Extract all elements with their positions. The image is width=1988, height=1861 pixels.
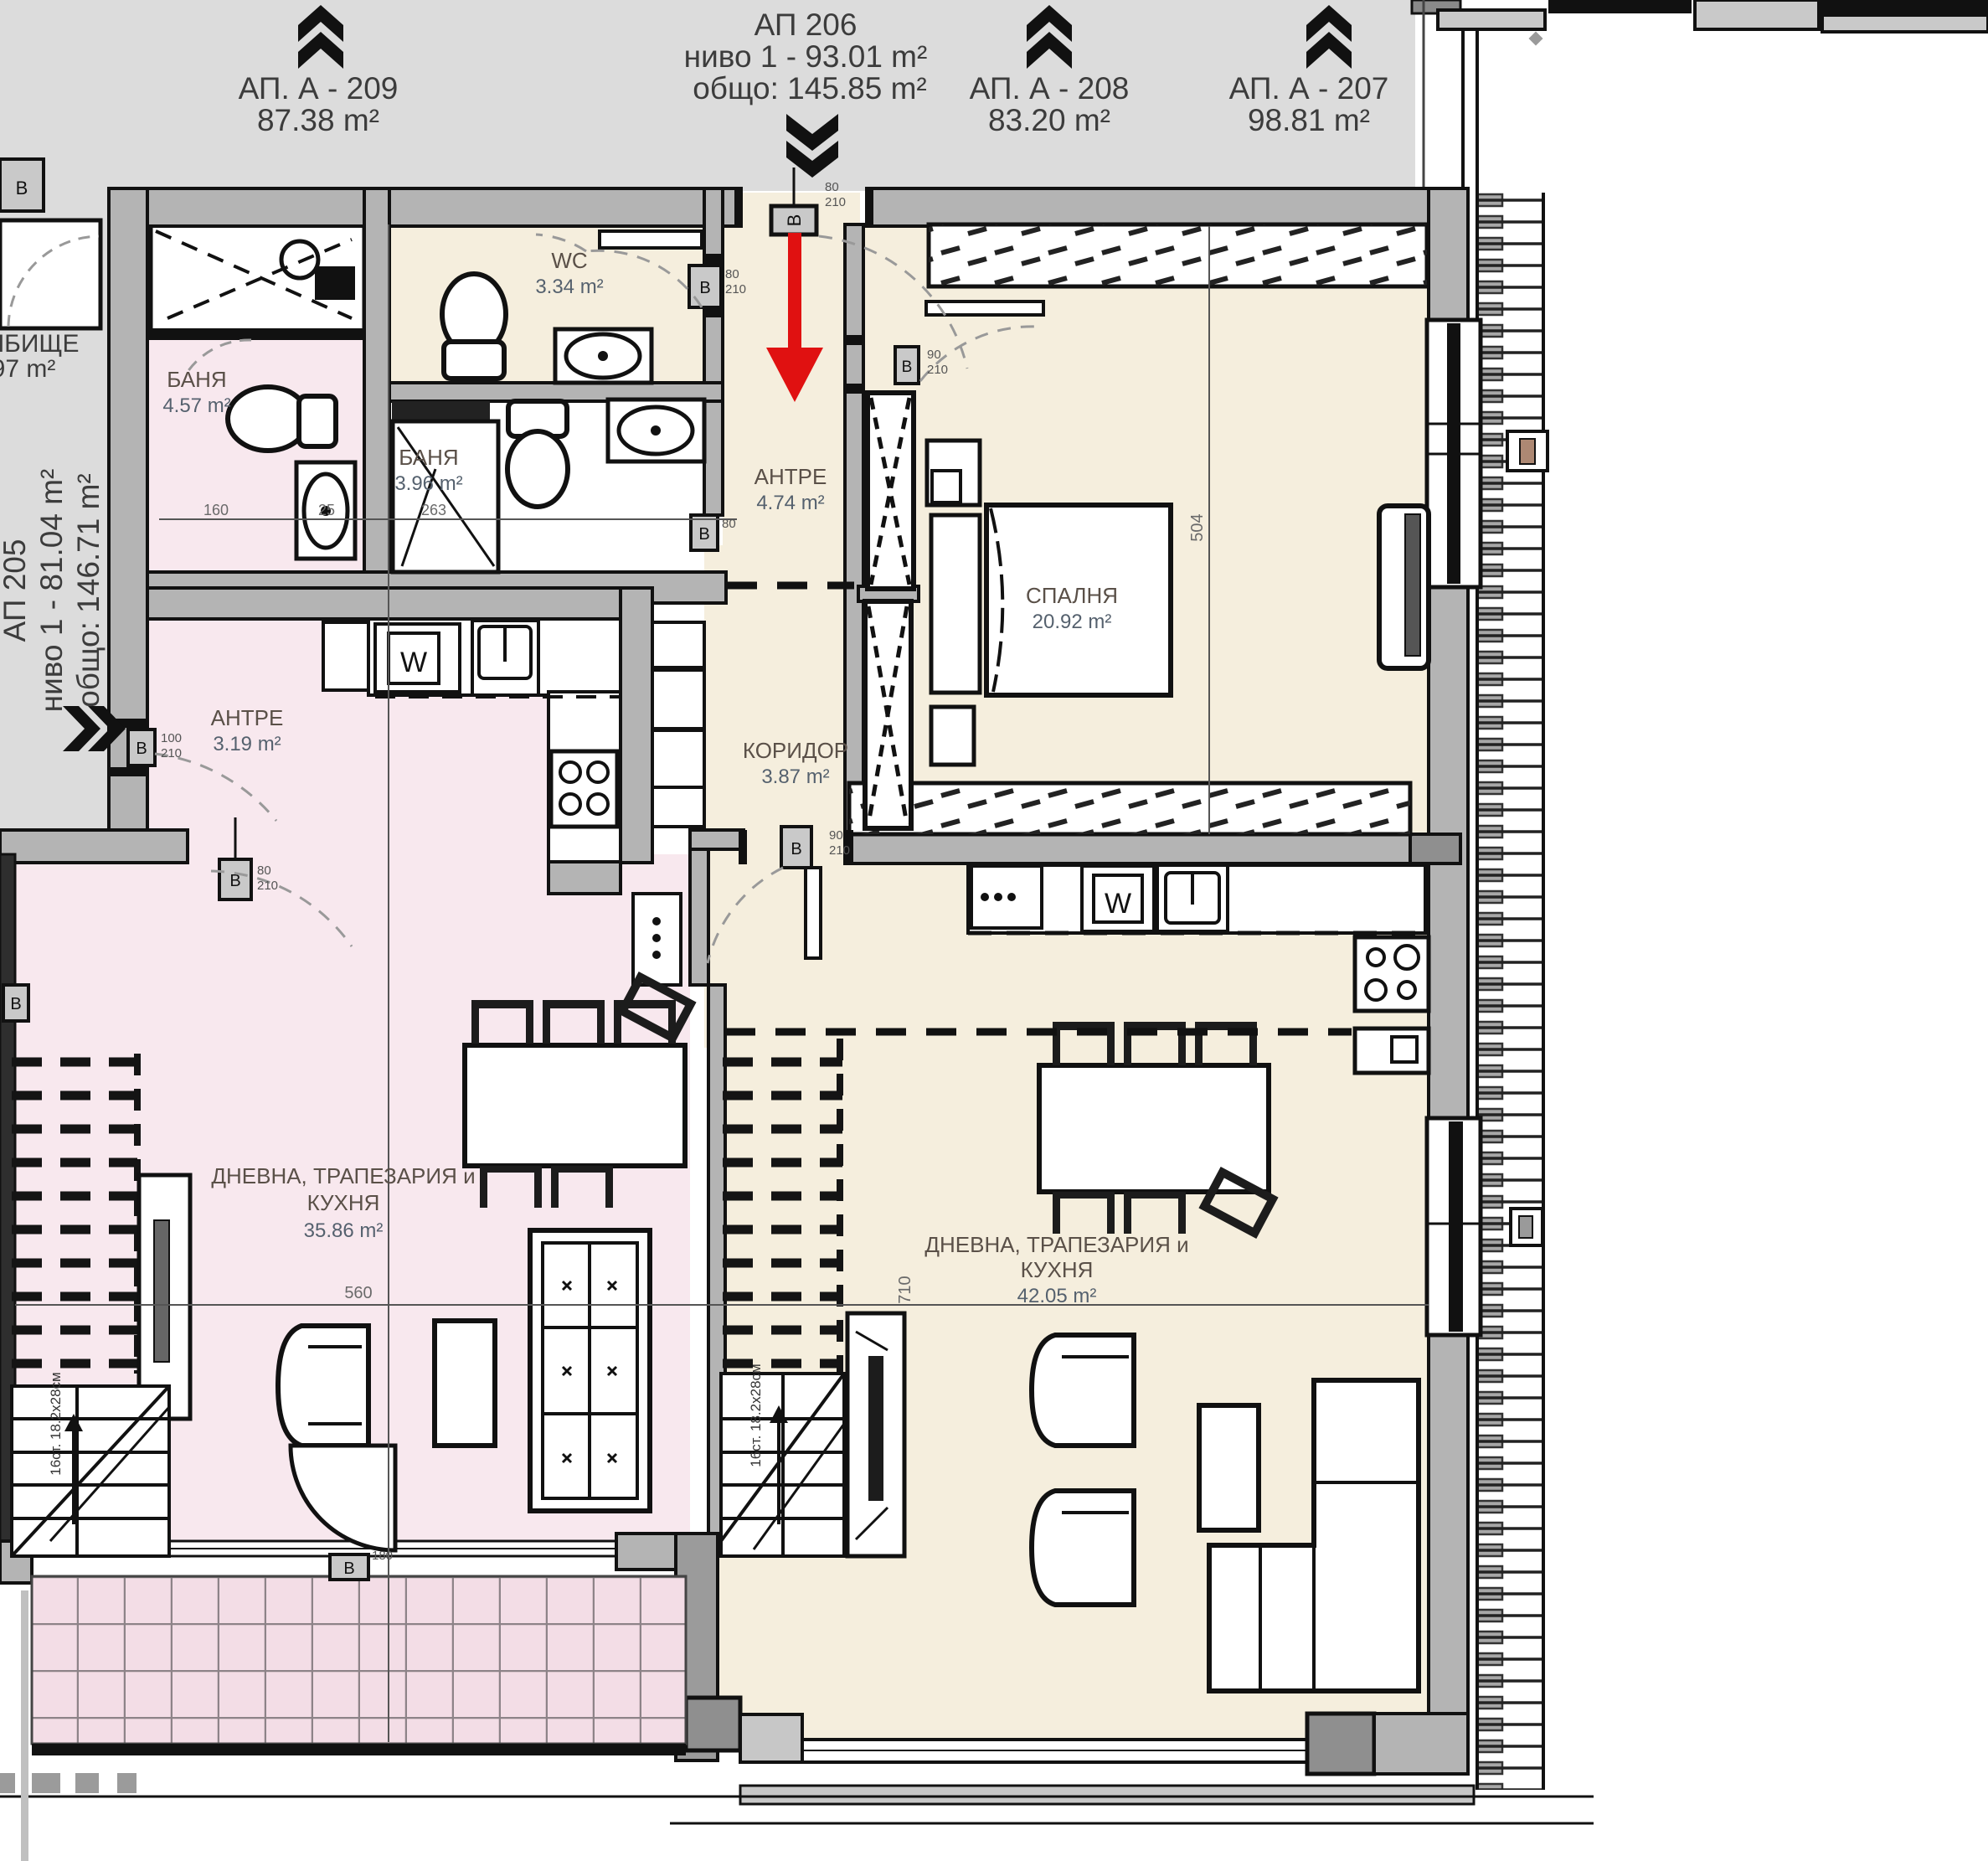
- svg-text:W: W: [1105, 888, 1131, 920]
- svg-text:В: В: [784, 214, 805, 227]
- svg-text:БАНЯ: БАНЯ: [399, 445, 458, 470]
- svg-text:210: 210: [257, 879, 278, 893]
- svg-text:ДНЕВНА, ТРАПЕЗАРИЯ и: ДНЕВНА, ТРАПЕЗАРИЯ и: [924, 1232, 1188, 1257]
- svg-text:80: 80: [722, 517, 736, 531]
- svg-text:АНТРЕ: АНТРЕ: [211, 705, 284, 730]
- svg-text:83.20 m²: 83.20 m²: [988, 103, 1110, 137]
- svg-text:АНТРЕ: АНТРЕ: [755, 464, 827, 489]
- svg-text:КОРИДОР: КОРИДОР: [743, 738, 848, 763]
- svg-text:ниво 1 - 81.04 m²: ниво 1 - 81.04 m²: [34, 469, 69, 713]
- svg-text:210: 210: [825, 195, 846, 209]
- svg-text:504: 504: [1188, 513, 1207, 541]
- svg-text:80: 80: [825, 180, 839, 194]
- svg-text:АП 206: АП 206: [755, 8, 858, 42]
- svg-text:20.92 m²: 20.92 m²: [1033, 611, 1112, 633]
- svg-text:БАНЯ: БАНЯ: [167, 367, 226, 392]
- svg-text:3.19 m²: 3.19 m²: [213, 733, 281, 755]
- svg-text:КУХНЯ: КУХНЯ: [1021, 1257, 1094, 1282]
- svg-text:В: В: [699, 279, 710, 297]
- svg-text:210: 210: [161, 746, 182, 760]
- svg-text:100: 100: [161, 731, 182, 745]
- svg-text:3.96 m²: 3.96 m²: [394, 472, 462, 495]
- svg-text:210: 210: [927, 363, 948, 377]
- svg-text:4.74 m²: 4.74 m²: [756, 492, 824, 514]
- svg-text:4.57 m²: 4.57 m²: [162, 394, 230, 417]
- svg-text:В: В: [16, 178, 28, 198]
- svg-text:В: В: [791, 840, 801, 858]
- svg-text:WC: WC: [551, 248, 587, 273]
- svg-text:АП 205: АП 205: [0, 539, 32, 642]
- svg-text:В: В: [10, 995, 21, 1013]
- svg-text:16ст. 18.2x28см: 16ст. 18.2x28см: [48, 1372, 64, 1475]
- svg-text:ниво 1 - 93.01 m²: ниво 1 - 93.01 m²: [684, 39, 928, 74]
- svg-text:В: В: [902, 358, 913, 376]
- svg-text:АП. А - 207: АП. А - 207: [1229, 71, 1389, 106]
- svg-text:710: 710: [896, 1276, 914, 1303]
- svg-text:ДНЕВНА, ТРАПЕЗАРИЯ и: ДНЕВНА, ТРАПЕЗАРИЯ и: [211, 1163, 475, 1188]
- svg-text:42.05 m²: 42.05 m²: [1017, 1285, 1097, 1307]
- svg-text:ЛБИЩЕ: ЛБИЩЕ: [0, 330, 80, 358]
- svg-text:90: 90: [829, 828, 843, 843]
- svg-text:90: 90: [927, 348, 941, 362]
- svg-text:АП. А - 208: АП. А - 208: [970, 71, 1130, 106]
- svg-text:В: В: [136, 740, 147, 758]
- svg-text:В: В: [698, 525, 709, 544]
- svg-text:25: 25: [318, 502, 335, 518]
- svg-text:общо: 145.85 m²: общо: 145.85 m²: [693, 71, 927, 106]
- svg-text:210: 210: [725, 282, 746, 296]
- svg-text:35.86 m²: 35.86 m²: [304, 1219, 384, 1242]
- svg-text:АП. А - 209: АП. А - 209: [239, 71, 399, 106]
- svg-text:общо: 146.71 m²: общо: 146.71 m²: [71, 473, 106, 708]
- svg-text:3.34 m²: 3.34 m²: [535, 276, 603, 298]
- svg-text:80: 80: [257, 863, 271, 878]
- svg-text:80: 80: [725, 267, 739, 281]
- svg-text:97 m²: 97 m²: [0, 355, 55, 383]
- svg-text:87.38 m²: 87.38 m²: [257, 103, 379, 137]
- svg-text:98.81 m²: 98.81 m²: [1248, 103, 1370, 137]
- svg-text:В: В: [343, 1559, 354, 1578]
- svg-text:W: W: [400, 647, 427, 678]
- svg-text:560: 560: [344, 1284, 372, 1302]
- svg-text:210: 210: [829, 843, 850, 858]
- svg-text:КУХНЯ: КУХНЯ: [307, 1190, 380, 1215]
- svg-text:160: 160: [203, 502, 229, 518]
- svg-text:СПАЛНЯ: СПАЛНЯ: [1026, 583, 1118, 608]
- svg-text:3.87 m²: 3.87 m²: [761, 766, 829, 788]
- svg-text:263: 263: [421, 502, 446, 518]
- svg-text:180: 180: [372, 1549, 393, 1563]
- svg-text:16ст. 18.2x28см: 16ст. 18.2x28см: [748, 1364, 764, 1467]
